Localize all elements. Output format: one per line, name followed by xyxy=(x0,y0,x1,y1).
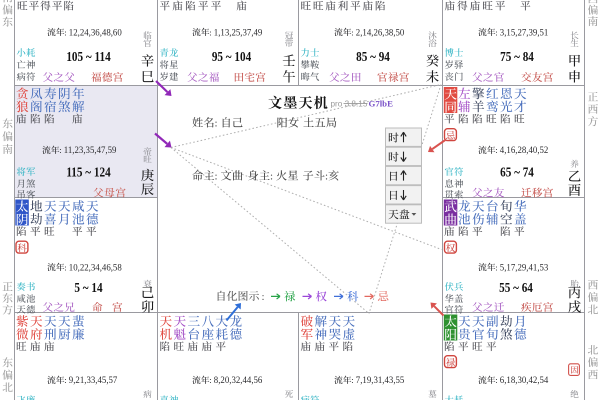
svg-text:1,13,25,37,49: 1,13,25,37,49 xyxy=(214,27,263,37)
svg-text::: : xyxy=(495,145,497,155)
svg-text::: : xyxy=(262,291,265,303)
svg-text::: : xyxy=(64,262,66,272)
svg-text:55 ~ 64: 55 ~ 64 xyxy=(499,280,533,295)
svg-text:G7lbE: G7lbE xyxy=(369,99,394,109)
svg-text::: : xyxy=(215,171,218,183)
svg-text::: : xyxy=(59,145,61,155)
svg-text:65 ~ 74: 65 ~ 74 xyxy=(500,164,534,179)
svg-text:4,16,28,40,52: 4,16,28,40,52 xyxy=(500,145,549,155)
svg-text::: : xyxy=(495,375,497,385)
svg-text:8,20,32,44,56: 8,20,32,44,56 xyxy=(214,375,263,385)
svg-text:7,19,31,43,55: 7,19,31,43,55 xyxy=(356,375,405,385)
svg-text::: : xyxy=(351,27,353,37)
svg-text::: : xyxy=(64,27,66,37)
svg-text:75 ~ 84: 75 ~ 84 xyxy=(500,49,534,64)
svg-text::: : xyxy=(209,27,211,37)
svg-text::: : xyxy=(495,27,497,37)
svg-text:11,23,35,47,59: 11,23,35,47,59 xyxy=(64,145,117,155)
svg-text::: : xyxy=(64,375,66,385)
svg-text:3,15,27,39,51: 3,15,27,39,51 xyxy=(500,27,549,37)
svg-text:10,22,34,46,58: 10,22,34,46,58 xyxy=(69,262,122,272)
svg-text::: : xyxy=(215,118,218,130)
svg-text:2,14,26,38,50: 2,14,26,38,50 xyxy=(356,27,405,37)
svg-text::: : xyxy=(351,375,353,385)
svg-text::: : xyxy=(270,171,273,183)
svg-text:9,21,33,45,57: 9,21,33,45,57 xyxy=(69,375,118,385)
svg-text:105 ~ 114: 105 ~ 114 xyxy=(66,49,111,64)
svg-text:85 ~ 94: 85 ~ 94 xyxy=(356,49,390,64)
svg-text::: : xyxy=(325,171,328,183)
svg-text:12,24,36,48,60: 12,24,36,48,60 xyxy=(69,27,122,37)
svg-text::: : xyxy=(209,375,211,385)
svg-text:6,18,30,42,54: 6,18,30,42,54 xyxy=(500,375,549,385)
svg-text:95 ~ 104: 95 ~ 104 xyxy=(212,49,252,64)
svg-text:115 ~ 124: 115 ~ 124 xyxy=(66,164,111,179)
svg-text:5 ~ 14: 5 ~ 14 xyxy=(74,280,103,295)
svg-text:5,17,29,41,53: 5,17,29,41,53 xyxy=(500,262,549,272)
svg-text:pro 3.8.15: pro 3.8.15 xyxy=(331,100,368,109)
svg-text::: : xyxy=(495,262,497,272)
